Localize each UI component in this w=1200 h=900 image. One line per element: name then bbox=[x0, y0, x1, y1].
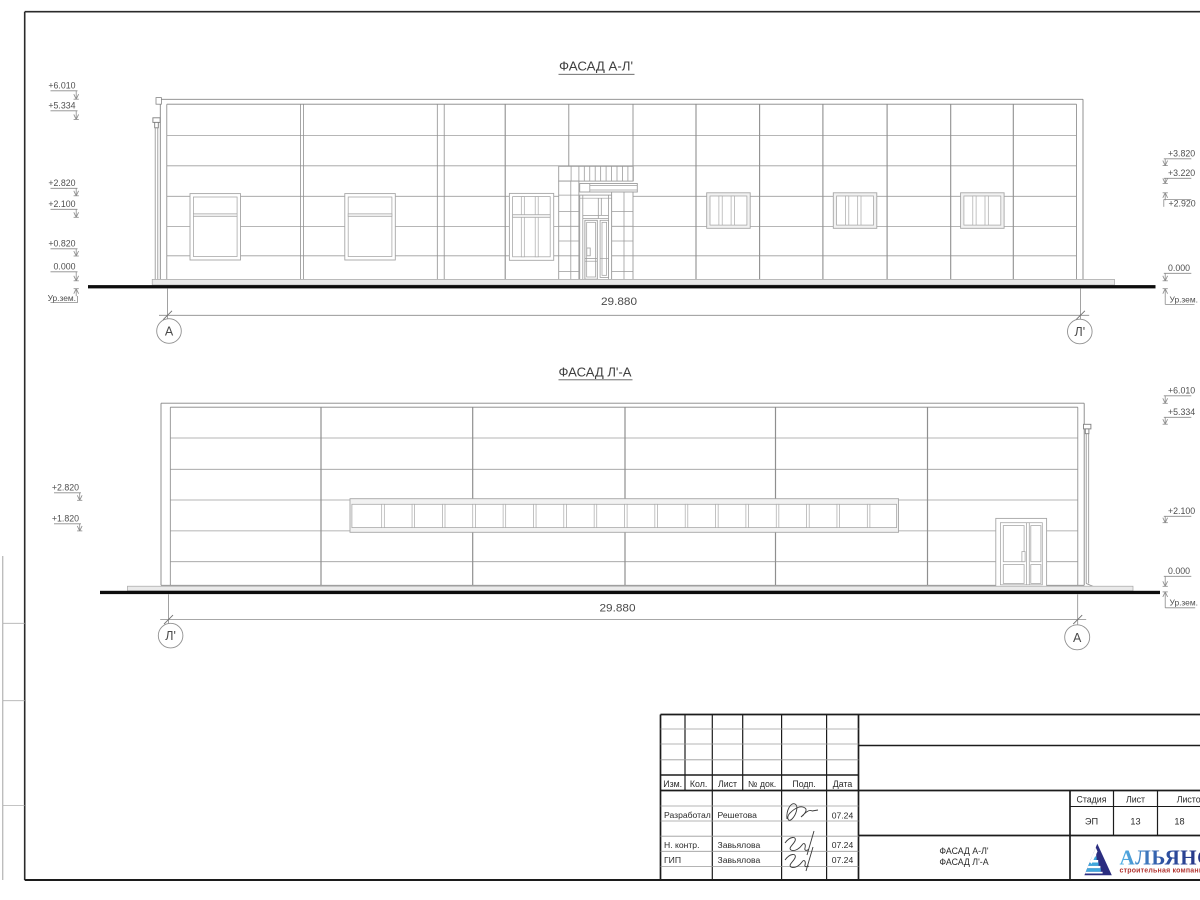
svg-text:ФАСАД Л'-А: ФАСАД Л'-А bbox=[939, 857, 988, 867]
svg-text:+3.220: +3.220 bbox=[1168, 168, 1195, 178]
svg-text:Ур.зем.: Ур.зем. bbox=[1170, 598, 1198, 608]
svg-text:+6.010: +6.010 bbox=[48, 81, 75, 91]
svg-text:13: 13 bbox=[1130, 817, 1140, 827]
svg-text:ГИП: ГИП bbox=[664, 855, 681, 865]
svg-text:+2.100: +2.100 bbox=[48, 199, 75, 209]
svg-text:ФАСАД А-Л': ФАСАД А-Л' bbox=[939, 846, 988, 856]
svg-text:Завьялова: Завьялова bbox=[718, 855, 761, 865]
svg-text:№ док.: № док. bbox=[748, 779, 776, 789]
svg-text:07.24: 07.24 bbox=[832, 840, 854, 850]
svg-text:0.000: 0.000 bbox=[1168, 263, 1190, 273]
svg-text:Лист: Лист bbox=[718, 779, 737, 789]
svg-text:29.880: 29.880 bbox=[601, 296, 637, 308]
svg-text:0.000: 0.000 bbox=[53, 262, 75, 272]
svg-text:Подп.: Подп. bbox=[792, 779, 815, 789]
svg-text:+2.820: +2.820 bbox=[52, 483, 79, 493]
svg-text:+2.820: +2.820 bbox=[48, 178, 75, 188]
svg-text:Завьялова: Завьялова bbox=[718, 840, 761, 850]
svg-text:Листов: Листов bbox=[1177, 794, 1200, 804]
svg-text:ФАСАД Л'-А: ФАСАД Л'-А bbox=[559, 366, 633, 380]
svg-text:+0.820: +0.820 bbox=[48, 239, 75, 249]
svg-text:+2.920: +2.920 bbox=[1169, 198, 1196, 208]
svg-text:Стадия: Стадия bbox=[1077, 794, 1107, 804]
svg-text:Кол.: Кол. bbox=[690, 779, 707, 789]
svg-text:Ур.зем.: Ур.зем. bbox=[1170, 295, 1198, 305]
svg-text:Лист: Лист bbox=[1126, 794, 1145, 804]
svg-text:29.880: 29.880 bbox=[600, 603, 636, 615]
svg-text:07.24: 07.24 bbox=[832, 810, 854, 820]
svg-text:Ур.зем.: Ур.зем. bbox=[48, 293, 76, 303]
svg-text:Решетова: Решетова bbox=[718, 810, 758, 820]
svg-text:АЛЬЯНС: АЛЬЯНС bbox=[1120, 846, 1200, 870]
svg-text:ФАСАД А-Л': ФАСАД А-Л' bbox=[559, 60, 633, 74]
svg-text:+1.820: +1.820 bbox=[52, 514, 79, 524]
svg-text:18: 18 bbox=[1174, 817, 1184, 827]
svg-text:Разработал: Разработал bbox=[664, 810, 711, 820]
svg-text:+5.334: +5.334 bbox=[48, 101, 75, 111]
svg-text:Н. контр.: Н. контр. bbox=[664, 840, 699, 850]
svg-text:+3.820: +3.820 bbox=[1168, 149, 1195, 159]
svg-text:Изм.: Изм. bbox=[663, 779, 682, 789]
svg-text:0.000: 0.000 bbox=[1168, 566, 1190, 576]
svg-text:07.24: 07.24 bbox=[832, 855, 854, 865]
svg-text:ЭП: ЭП bbox=[1085, 817, 1098, 827]
svg-text:Дата: Дата bbox=[833, 779, 853, 789]
svg-text:строительная компания: строительная компания bbox=[1120, 868, 1200, 875]
svg-text:+6.010: +6.010 bbox=[1168, 386, 1195, 396]
svg-text:Л': Л' bbox=[165, 629, 176, 643]
svg-text:А: А bbox=[165, 325, 174, 339]
svg-text:Л': Л' bbox=[1075, 325, 1086, 339]
svg-text:+5.334: +5.334 bbox=[1168, 407, 1195, 417]
svg-text:+2.100: +2.100 bbox=[1168, 506, 1195, 516]
svg-text:А: А bbox=[1073, 631, 1082, 645]
